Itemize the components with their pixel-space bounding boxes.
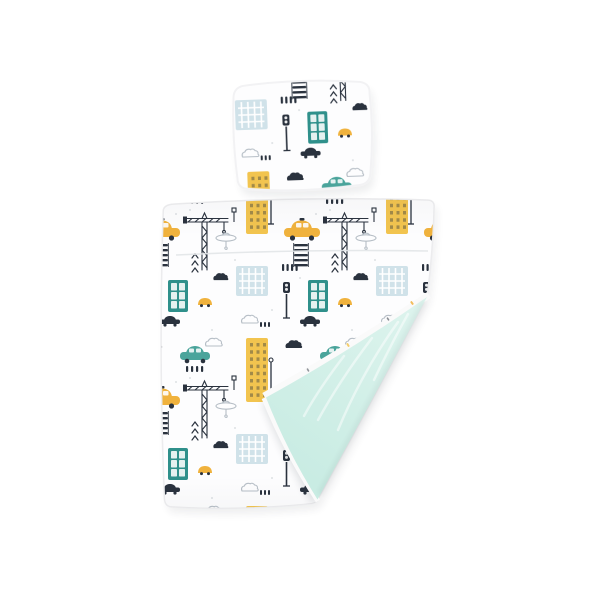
product-photo — [0, 0, 600, 600]
pillow — [232, 78, 377, 199]
duvet — [161, 199, 437, 515]
pillow-front-patterned — [232, 79, 374, 193]
bedding-set-photo — [0, 0, 600, 600]
